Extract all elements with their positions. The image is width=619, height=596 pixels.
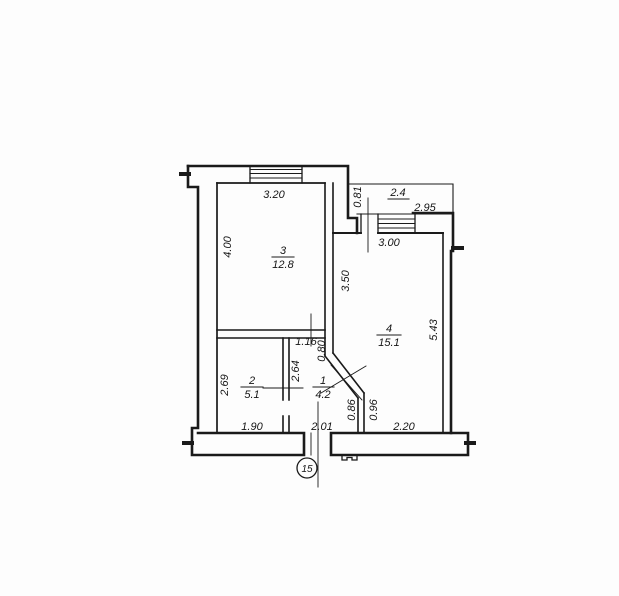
dim-hall-depth: 2.64 [290,360,302,382]
window-room4-hatch [378,219,415,228]
balcony-area-label: 2.4 [389,187,405,199]
room-3-area: 12.8 [272,259,294,271]
wall-left-and-bottom-left [188,166,304,455]
floor-plan-drawing: 3.20 4.00 0.81 2.95 3.00 3.50 5.43 1.16 … [0,0,619,596]
dim-balcony-recess: 0.81 [352,186,364,207]
dim-hall-door: 0.80 [316,339,328,361]
dim-wall-segment-right: 0.96 [368,398,380,420]
room-3-number: 3 [280,245,287,257]
room-2-area: 5.1 [244,389,259,401]
dim-room4-upper-depth: 3.50 [340,269,352,291]
window-room3-jambs [250,166,302,183]
dim-room2-width: 1.90 [241,421,263,433]
section-mark-number: 15 [301,464,313,475]
dim-balcony-width: 2.95 [413,202,436,214]
room-1-number: 1 [320,375,326,387]
room-4-number: 4 [386,323,392,335]
section-mark: 15 [297,458,317,478]
room-2-number: 2 [248,375,255,387]
wall-diagonal [325,353,364,398]
dim-room4-bottom: 2.20 [392,421,415,433]
room-1-area: 4.2 [315,389,330,401]
floor-plan-sheet: 3.20 4.00 0.81 2.95 3.00 3.50 5.43 1.16 … [0,0,619,596]
dim-room4-window: 3.00 [378,237,400,249]
wall-room3-room4 [325,183,333,356]
dim-room4-depth: 5.43 [428,318,440,340]
interior-walls [217,183,366,433]
dim-room3-depth: 4.00 [222,235,234,257]
dim-room2-depth: 2.69 [219,374,231,396]
window-room3-hatch [250,170,302,179]
dim-wall-segment-left: 0.86 [346,398,358,420]
dim-hall-width: 2.01 [310,421,332,433]
wall-room2-hall [283,338,289,433]
dim-hall-top: 1.16 [295,336,317,348]
wall-bottom-right [331,433,468,455]
dim-room3-width: 3.20 [263,189,285,201]
room-4-area: 15.1 [378,337,399,349]
